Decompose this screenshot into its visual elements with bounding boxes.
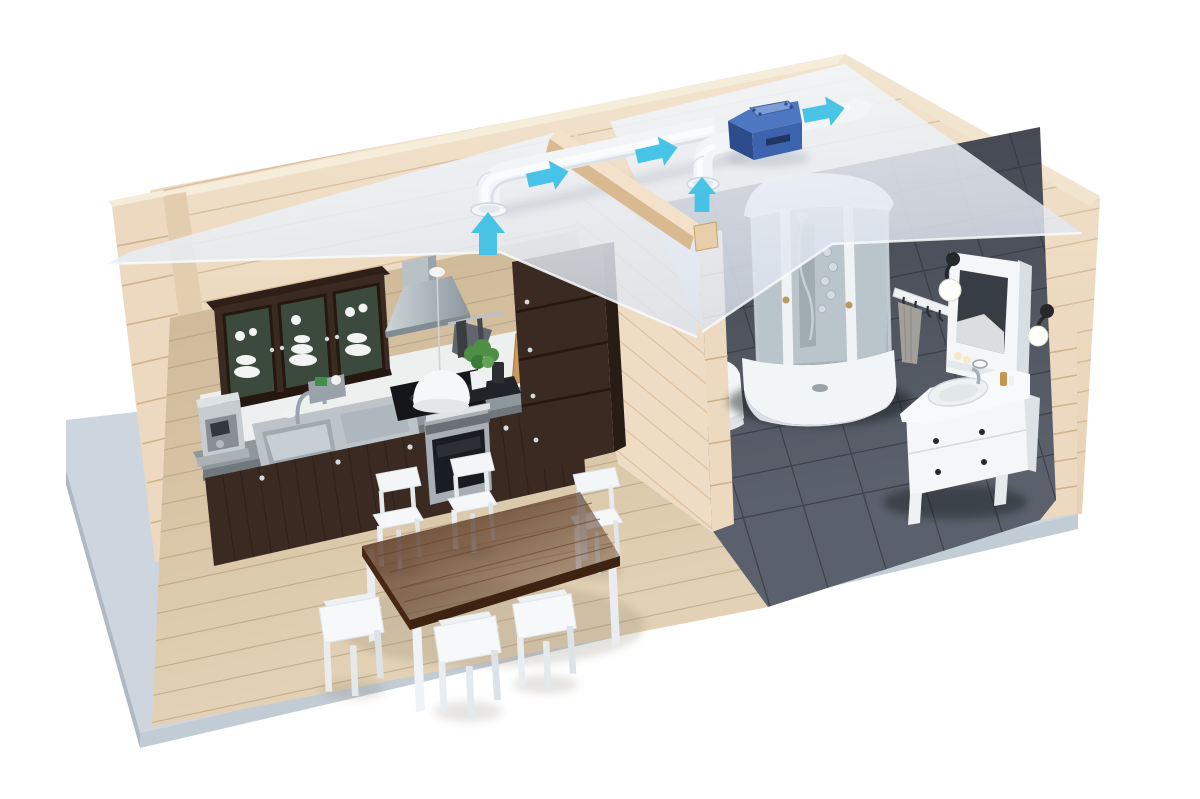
render-canvas: Photorealistic 3D cutaway of a log-walle… xyxy=(0,0,1200,799)
soap-bottle xyxy=(1000,372,1007,386)
vanity-leg xyxy=(908,492,922,525)
vanity-leg xyxy=(994,474,1008,506)
shower-door-handle xyxy=(783,297,790,304)
soap-bottle xyxy=(1009,376,1014,386)
mirror-cabinet xyxy=(946,252,1032,392)
house-cutaway-illustration: Home ventilation system 3D cutaway xyxy=(0,0,1200,799)
shower-door-handle xyxy=(846,302,853,309)
chair xyxy=(434,611,502,722)
chair xyxy=(513,589,578,694)
chair xyxy=(319,593,385,700)
shower-drain xyxy=(812,384,828,392)
